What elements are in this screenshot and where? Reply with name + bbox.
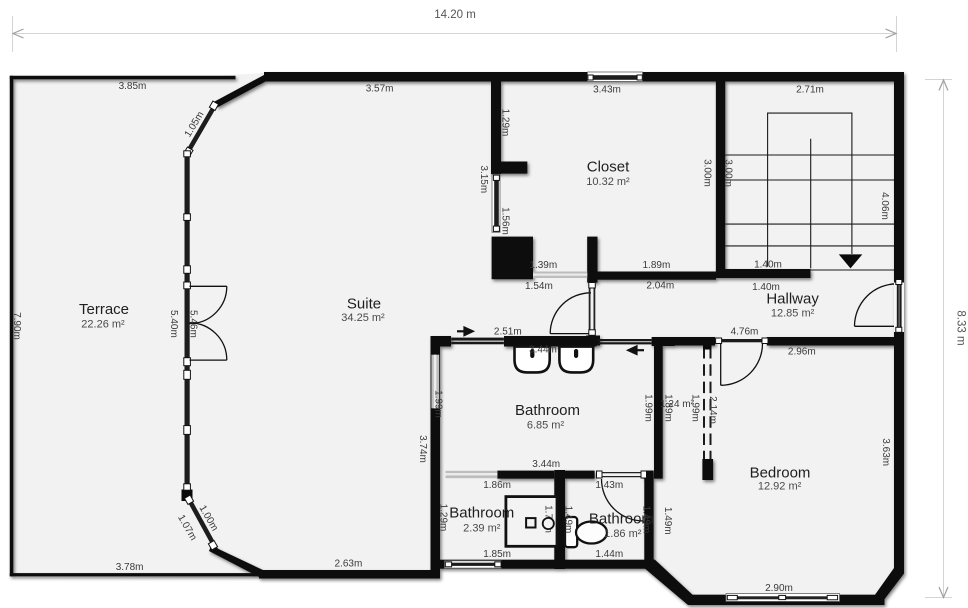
svg-text:Bedroom: Bedroom [750,465,811,482]
svg-text:1.99m: 1.99m [433,390,444,418]
svg-text:12.85 m²: 12.85 m² [771,308,815,320]
svg-text:12.92 m²: 12.92 m² [758,481,802,493]
svg-text:5.46m: 5.46m [188,310,199,338]
svg-text:Terrace: Terrace [79,301,129,318]
svg-text:2.90m: 2.90m [765,583,793,594]
svg-text:Suite: Suite [347,296,381,313]
svg-text:1.49m: 1.49m [641,506,652,534]
svg-text:1.99m: 1.99m [689,394,700,422]
svg-text:3.74m: 3.74m [417,435,428,463]
svg-text:3.44m: 3.44m [532,459,560,470]
svg-text:1.43m: 1.43m [595,480,623,491]
svg-text:7.90m: 7.90m [11,312,22,340]
svg-text:10.32 m²: 10.32 m² [586,176,630,188]
svg-text:2.04m: 2.04m [646,281,674,292]
svg-text:1.49m: 1.49m [563,506,574,534]
svg-text:8.33 m: 8.33 m [955,310,967,345]
svg-text:1.49m: 1.49m [662,507,673,535]
svg-text:1.29m: 1.29m [438,504,449,532]
svg-text:3.78m: 3.78m [116,562,144,573]
svg-text:6.85 m²: 6.85 m² [527,420,565,432]
svg-text:5.40m: 5.40m [168,310,179,338]
svg-text:1.54m: 1.54m [525,281,553,292]
svg-text:1.89m: 1.89m [643,260,671,271]
svg-text:4.76m: 4.76m [731,326,759,337]
svg-text:3.57m: 3.57m [366,84,394,95]
svg-text:1.85m: 1.85m [483,549,511,560]
svg-text:1.56m: 1.56m [499,207,510,235]
svg-text:1.86m: 1.86m [483,480,511,491]
svg-text:2.51m: 2.51m [494,326,522,337]
svg-text:2.39 m²: 2.39 m² [463,523,501,535]
svg-text:1.40m: 1.40m [754,259,782,270]
svg-text:3.15m: 3.15m [478,165,489,193]
svg-text:14.20 m: 14.20 m [434,9,476,21]
svg-text:1.86 m²: 1.86 m² [604,528,642,540]
svg-text:1.44m: 1.44m [595,549,623,560]
svg-text:34.25 m²: 34.25 m² [341,312,385,324]
svg-text:4.06m: 4.06m [879,192,890,220]
svg-text:3.44m: 3.44m [529,345,557,356]
svg-text:Bathroom: Bathroom [515,402,580,419]
svg-text:2.96m: 2.96m [788,347,816,358]
svg-text:2.63m: 2.63m [335,559,363,570]
svg-text:2.71m: 2.71m [796,85,824,96]
svg-text:1.29m: 1.29m [500,109,511,137]
svg-text:1.99m: 1.99m [643,394,654,422]
svg-text:22.26 m²: 22.26 m² [81,319,125,331]
svg-text:Hallway: Hallway [766,291,819,308]
svg-text:1.39m: 1.39m [529,260,557,271]
svg-text:3.43m: 3.43m [593,85,621,96]
svg-text:3.00m: 3.00m [723,159,734,187]
svg-text:3.63m: 3.63m [880,438,891,466]
svg-text:3.85m: 3.85m [119,81,147,92]
svg-text:3.00m: 3.00m [702,159,713,187]
svg-text:1.40m: 1.40m [752,282,780,293]
svg-text:Closet: Closet [587,159,630,176]
svg-text:Bathroom: Bathroom [449,505,514,522]
svg-text:2.14m: 2.14m [707,396,718,424]
